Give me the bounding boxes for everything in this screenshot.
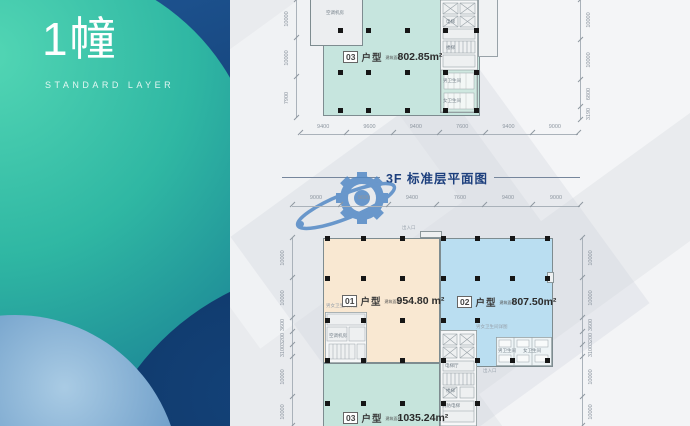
room-label-stair: 楼梯 [446,389,455,394]
unit-area-value: 802.85m² [397,51,442,63]
column-square [474,70,479,75]
dim-label: 9000 [549,124,561,130]
room-label-female-wc: 女卫生间 [523,349,541,354]
elevator-core-icon [440,0,478,113]
dim-label: 9400 [317,124,329,130]
column-square [325,276,330,281]
dim-label: 3190 [586,107,592,119]
dim-label: 3100 [280,345,286,357]
column-square [366,70,371,75]
unit-number-badge: 01 [342,295,357,308]
column-square [474,108,479,113]
unit-01-label: 01 户型 建筑面积 954.80 m² [342,294,444,308]
unit-number-badge: 03 [343,412,358,425]
unit-02-label: 02 户型 建筑面积 807.50m² [457,295,556,309]
unit-number-badge: 02 [457,296,472,309]
column-square [338,108,343,113]
column-square [361,276,366,281]
unit-number-badge: 03 [343,51,358,64]
unit-type-label: 户型 [360,294,381,308]
column-square [510,236,515,241]
unit-03-top-label: 03 户型 建筑面积 802.85m² [343,50,442,64]
column-square [325,236,330,241]
dim-label: 9000 [310,195,322,201]
unit-area-value: 807.50m² [511,296,556,308]
unit-03-label: 03 户型 建筑面积 1035.24m² [343,411,448,425]
dim-label: 9400 [410,124,422,130]
room-label-male-wc: 男卫生间 [498,349,516,354]
dim-line [300,134,578,135]
column-square [475,236,480,241]
dim-label: 3200 [280,332,286,344]
dim-tick [578,202,584,208]
entrance-top-label: 出入口 [402,226,416,231]
column-square [361,401,366,406]
column-square [475,276,480,281]
dim-label: 3100 [588,345,594,357]
column-square [361,318,366,323]
dim-label: 10000 [280,250,286,265]
dim-label: 10000 [586,52,592,67]
dim-label: 10000 [588,290,594,305]
room-label-elevator-hall: 电梯厅 [445,364,459,369]
page: 1幢 STANDARD LAYER 空调机房 [0,0,690,426]
unit-type-label: 户型 [361,411,382,425]
unit-area-prefix: 建筑面积 [499,300,508,305]
unit-area-prefix: 建筑面积 [385,55,394,60]
column-square [510,358,515,363]
column-square [366,28,371,33]
dim-label: 10000 [284,11,290,26]
dim-line [580,0,581,120]
dim-label: 10000 [280,290,286,305]
dim-label: 3600 [280,319,286,331]
building-title: 1幢 [42,12,118,67]
column-square [441,276,446,281]
plan-area: 空调机房 电梯 [230,0,690,426]
room-label-ac: 空调机房 [326,11,344,16]
column-square [405,28,410,33]
column-square [338,28,343,33]
unit-area-value: 1035.24m² [397,412,448,424]
dim-label: 3200 [588,332,594,344]
dim-line [296,0,297,118]
dim-label: 10000 [284,50,290,65]
column-square [475,318,480,323]
column-square [400,318,405,323]
dim-label: 7900 [284,91,290,103]
room-label-elevator: 电梯 [446,20,455,25]
dim-label: 3600 [588,319,594,331]
column-square [545,236,550,241]
column-square [338,70,343,75]
side-room-top [478,0,498,57]
column-square [400,236,405,241]
column-square [441,318,446,323]
column-square [475,358,480,363]
ac-room-cutout [310,0,363,46]
dim-label: 10000 [588,250,594,265]
column-square [545,276,550,281]
column-square [361,358,366,363]
dim-label: 9400 [502,195,514,201]
wc-note-right: 男女卫生间详图 [476,325,508,330]
column-square [475,401,480,406]
column-square [441,236,446,241]
room-label-ac: 空调机房 [329,334,347,339]
column-square [545,358,550,363]
column-square [443,28,448,33]
column-square [400,401,405,406]
column-square [405,70,410,75]
column-square [361,236,366,241]
elevator-core-top [440,0,478,113]
column-square [325,318,330,323]
column-square [510,276,515,281]
dim-label: 9400 [502,124,514,130]
sidebar: 1幢 STANDARD LAYER [0,0,230,426]
column-square [325,358,330,363]
dim-label: 9000 [550,195,562,201]
column-square [400,276,405,281]
room-label-male-wc: 男卫生间 [443,79,461,84]
column-square [441,358,446,363]
column-square [474,28,479,33]
unit-area-prefix: 建筑面积 [385,416,394,421]
dim-label: 7600 [454,195,466,201]
column-square [443,70,448,75]
dim-label: 9600 [363,124,375,130]
column-square [441,401,446,406]
dim-label: 10000 [588,369,594,384]
title-line-right [494,177,580,178]
column-square [325,401,330,406]
column-square [366,108,371,113]
unit-area-value: 954.80 m² [396,295,444,307]
dim-label: 10000 [588,404,594,419]
dim-label: 10000 [280,404,286,419]
room-label-female-wc: 女卫生间 [443,99,461,104]
dim-line [292,206,580,207]
dim-label: 9600 [358,195,370,201]
room-label-stair: 楼梯 [446,46,455,51]
dim-label: 10000 [280,369,286,384]
dim-label: 9400 [406,195,418,201]
dim-label: 6800 [586,87,592,99]
unit-area-prefix: 建筑面积 [384,299,393,304]
column-square [405,108,410,113]
column-square [443,108,448,113]
unit-type-label: 户型 [361,50,382,64]
dim-label: 10000 [586,12,592,27]
building-subtitle: STANDARD LAYER [45,80,174,90]
unit-type-label: 户型 [475,295,496,309]
dim-label: 7600 [456,124,468,130]
entrance-canopy [420,231,442,238]
entrance-right-label: 出入口 [483,369,497,374]
column-square [400,358,405,363]
